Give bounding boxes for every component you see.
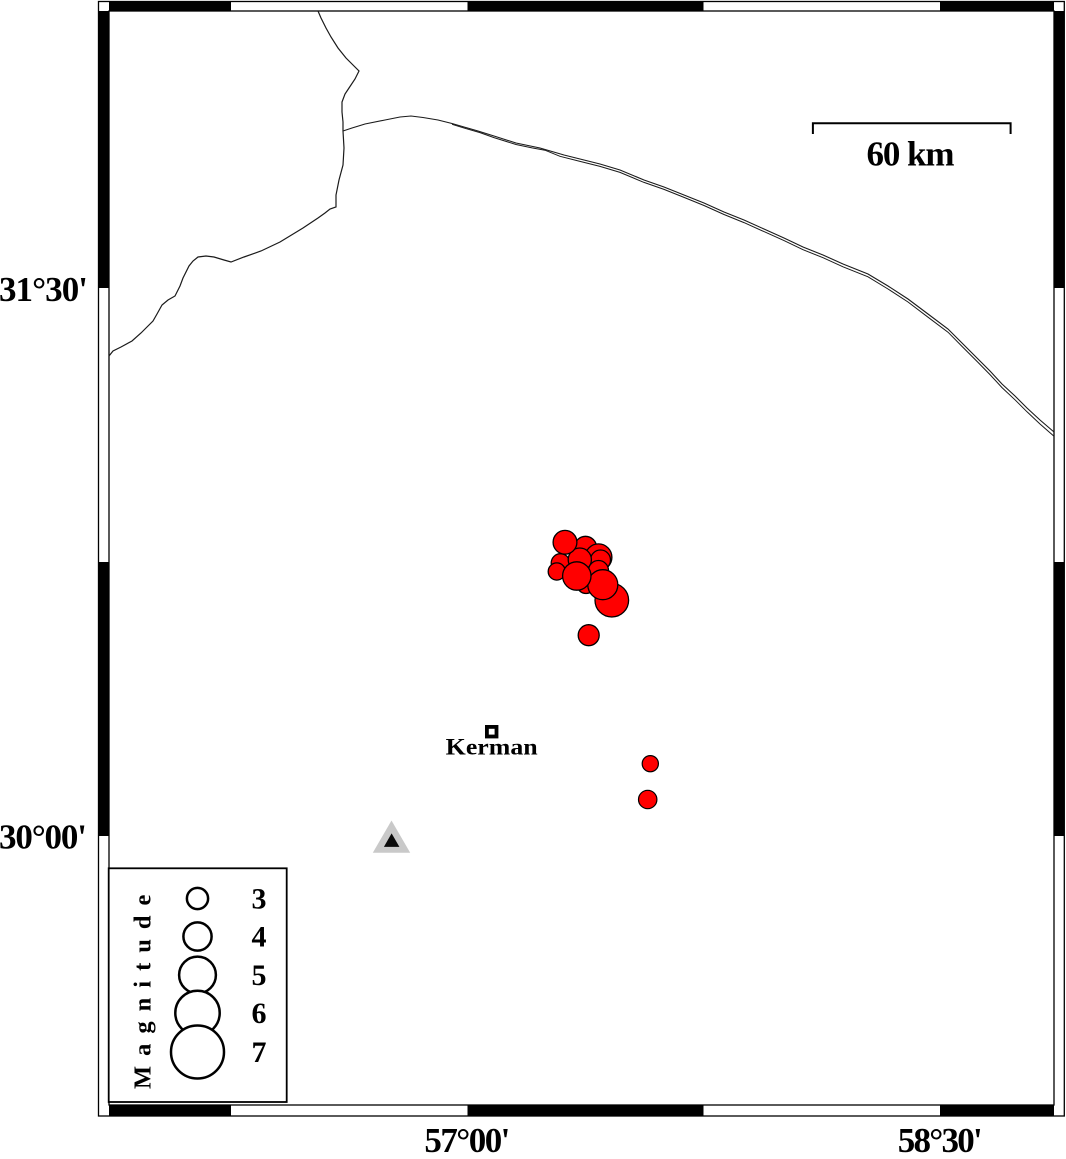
svg-text:58°30': 58°30' xyxy=(898,1121,983,1154)
svg-text:3: 3 xyxy=(252,882,267,915)
svg-text:30°00': 30°00' xyxy=(0,818,87,857)
svg-text:6: 6 xyxy=(252,997,267,1030)
svg-text:Kerman: Kerman xyxy=(446,735,538,760)
svg-text:5: 5 xyxy=(252,959,267,992)
svg-text:57°00': 57°00' xyxy=(424,1121,510,1154)
svg-text:4: 4 xyxy=(252,920,267,953)
svg-text:60 km: 60 km xyxy=(867,135,955,174)
svg-text:31°30': 31°30' xyxy=(0,270,88,309)
svg-text:7: 7 xyxy=(252,1036,267,1069)
svg-text:Magnitude: Magnitude xyxy=(130,885,157,1089)
